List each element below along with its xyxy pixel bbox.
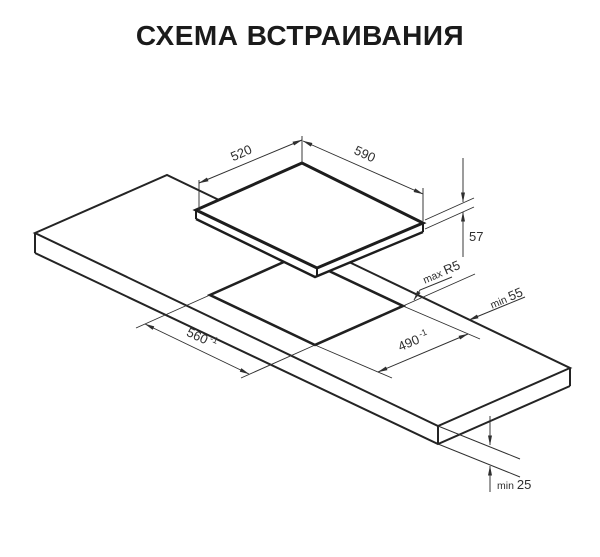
- min-25-extension-line: [438, 444, 520, 477]
- dim-590-label: 590: [352, 143, 378, 166]
- dim-490-label: 490-1: [395, 327, 430, 354]
- dim-560-label: 560-1: [184, 324, 220, 352]
- dim-57-label: 57: [469, 229, 483, 244]
- max-r5-value: R5: [441, 257, 462, 277]
- cooktop-body-mask: [196, 163, 423, 277]
- countertop-bottom-edge: [35, 253, 570, 444]
- min-55-prefix: min: [489, 294, 509, 312]
- min-55-value: 55: [506, 284, 525, 303]
- min-25-extension-line: [438, 426, 520, 459]
- min-55-label: min55: [487, 284, 525, 311]
- cooktop: [196, 163, 423, 277]
- dim-490-line: [378, 334, 468, 372]
- dim-57-extension-line: [425, 207, 474, 229]
- dim-490-value: 490: [396, 332, 422, 354]
- dim-57-extension-line: [425, 198, 474, 220]
- min-25-label: min25: [497, 477, 531, 492]
- dim-520-label: 520: [228, 142, 254, 165]
- installation-diagram: 520 590 57 560-1 490-1 maxR5: [0, 0, 600, 557]
- min-25-prefix: min: [497, 480, 514, 492]
- dim-490-tolerance: -1: [417, 327, 428, 339]
- dim-560-value: 560: [184, 324, 210, 347]
- min-25-value: 25: [517, 477, 531, 492]
- installation-scheme-page: СХЕМА ВСТРАИВАНИЯ: [0, 0, 600, 557]
- max-r5-prefix: max: [421, 267, 445, 286]
